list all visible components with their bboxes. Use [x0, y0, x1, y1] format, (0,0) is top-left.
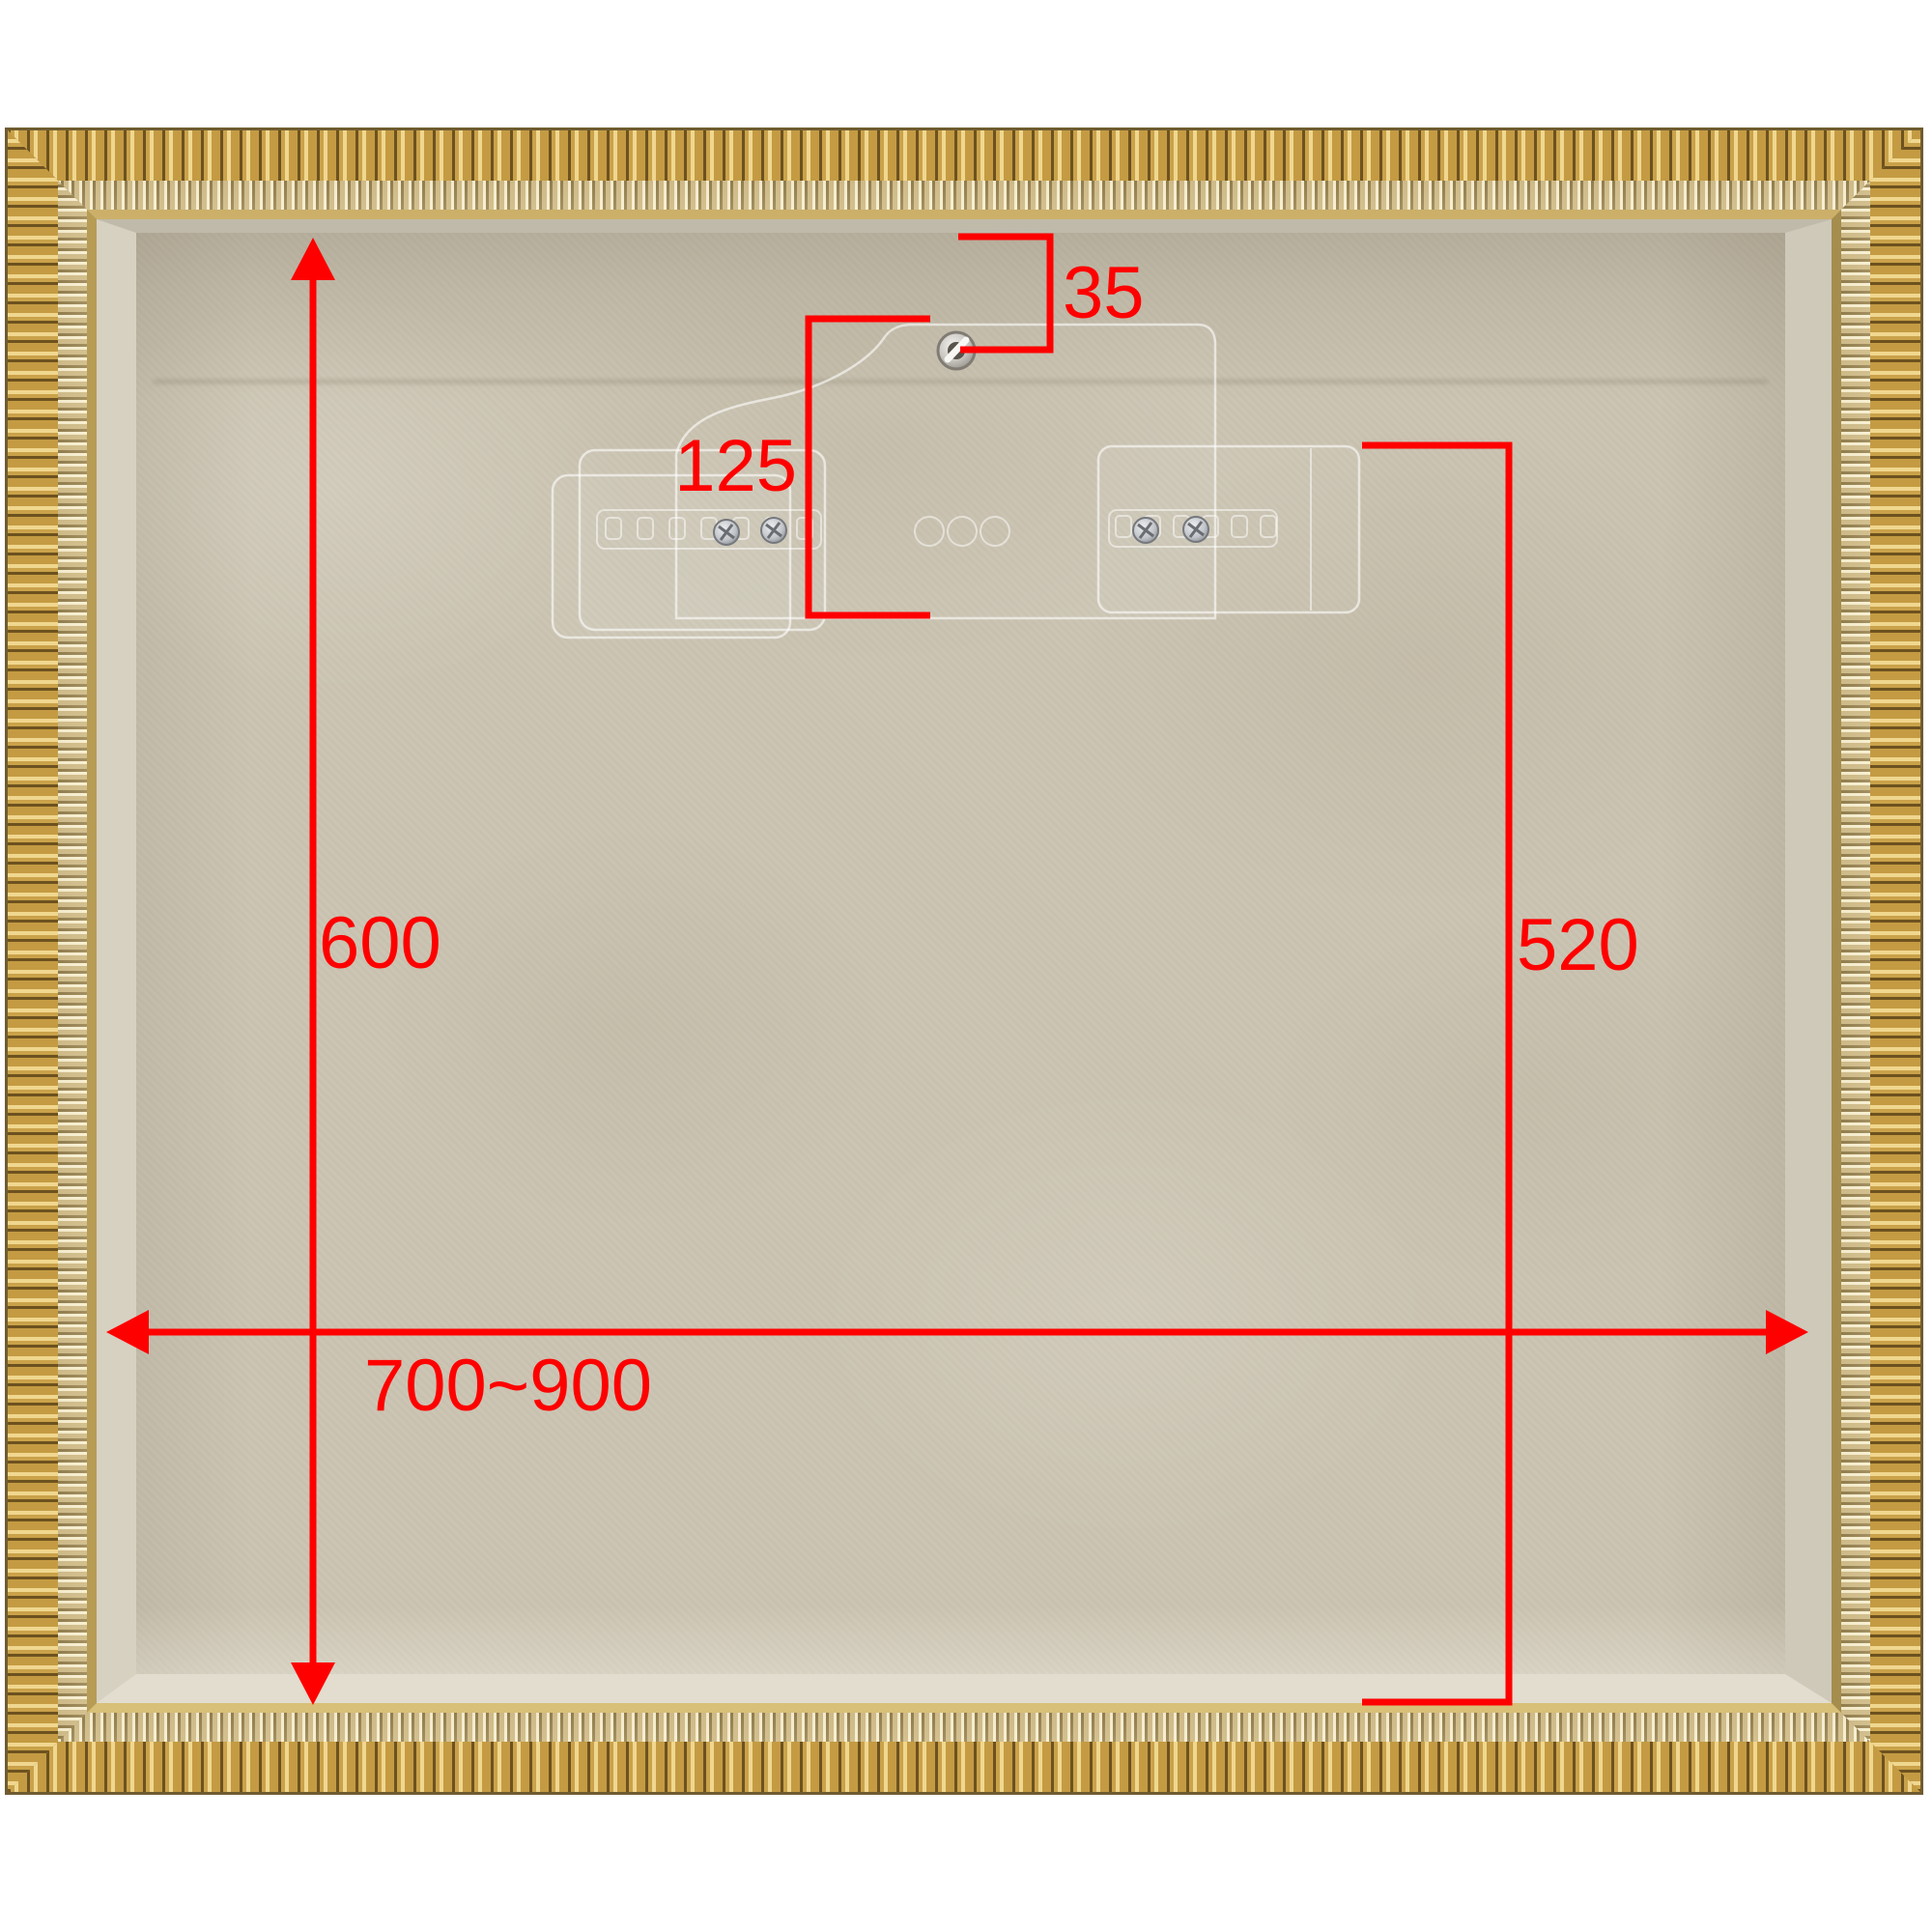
dim-hanger-drop-label: 125 [674, 425, 797, 507]
arrow-right-icon [1766, 1310, 1808, 1354]
screw-icon [1183, 517, 1208, 542]
screw-icon [761, 518, 786, 543]
arrow-down-icon [291, 1662, 335, 1705]
screw-icon [714, 520, 739, 545]
screw-icon [1133, 518, 1158, 543]
dim-right-height: 520 [1362, 445, 1639, 1702]
arrow-up-icon [291, 238, 335, 280]
dim-top-offset-label: 35 [1063, 252, 1145, 334]
dim-opening-height-label: 600 [319, 902, 441, 984]
dim-opening-width: 700~900 [106, 1310, 1808, 1427]
dim-opening-height: 600 [291, 238, 441, 1705]
arrow-left-icon [106, 1310, 149, 1354]
hardware-and-dimension-overlay: 35 125 600 520 700~900 [0, 0, 1932, 1932]
dim-right-height-bracket [1362, 445, 1509, 1702]
framed-panel-photo: 35 125 600 520 700~900 [0, 0, 1932, 1932]
dim-right-height-label: 520 [1517, 904, 1639, 986]
dim-opening-width-label: 700~900 [364, 1345, 652, 1427]
